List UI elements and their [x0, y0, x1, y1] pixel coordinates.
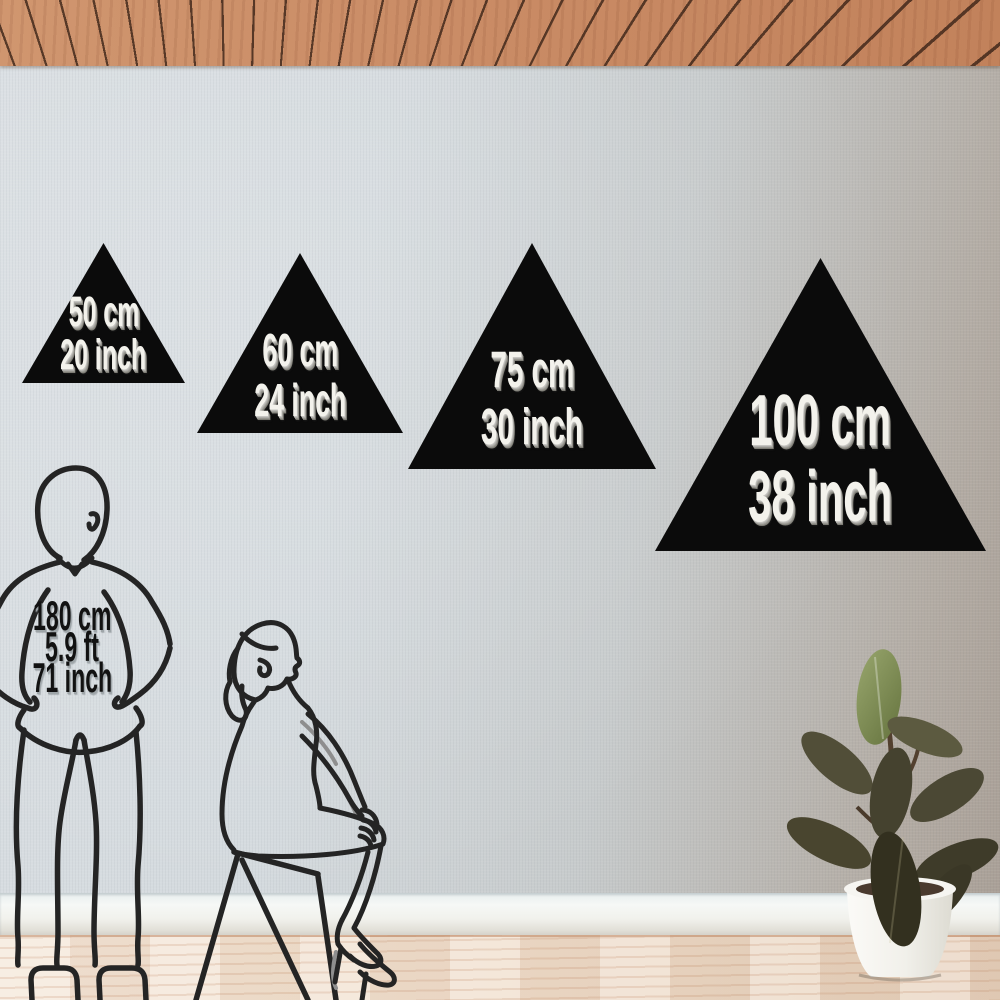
person-height-label: 180 cm 5.9 ft 71 inch [14, 600, 130, 693]
ceiling-wood-planks [0, 0, 1000, 66]
height-inch-label: 71 inch [32, 662, 112, 693]
triangle-inch-label: 20 inch [61, 334, 147, 377]
potted-plant [795, 645, 1000, 1000]
woman-outline [222, 623, 394, 1000]
triangle-cm-label: 50 cm [68, 291, 139, 334]
triangle-cm-label: 100 cm [750, 383, 892, 459]
standing-man-figure [0, 462, 188, 1000]
man-right-shoe [99, 968, 146, 1000]
seated-woman-figure [184, 614, 410, 1000]
stool-outline [196, 852, 336, 1000]
man-outline [0, 468, 170, 1000]
triangle-inch-label: 24 inch [254, 375, 346, 425]
man-left-shoe [31, 968, 78, 1000]
triangle-inch-label: 38 inch [749, 459, 893, 535]
man-ear [89, 514, 98, 529]
scene: 50 cm 20 inch 60 cm 24 inch 75 cm 30 inc… [0, 0, 1000, 1000]
triangle-inch-label: 30 inch [481, 398, 583, 455]
triangle-cm-label: 75 cm [490, 341, 574, 398]
triangle-cm-label: 60 cm [262, 325, 338, 375]
